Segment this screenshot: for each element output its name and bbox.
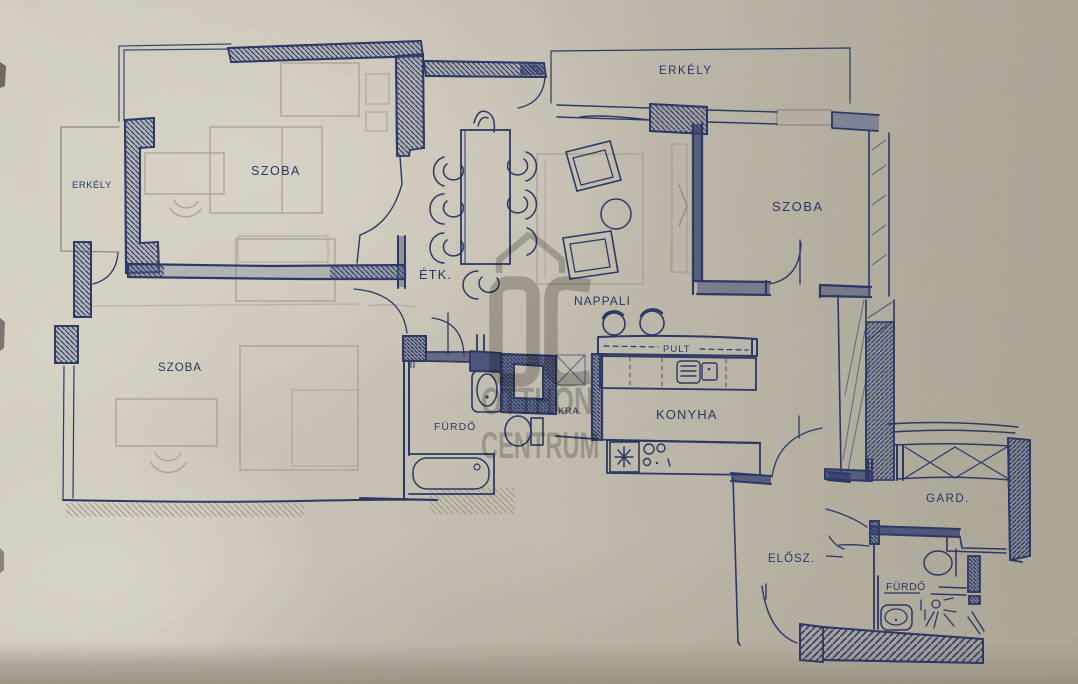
svg-text:GARD.: GARD. (926, 493, 970, 505)
svg-text:ELŐSZ.: ELŐSZ. (768, 551, 815, 565)
svg-text:ERKÉLY: ERKÉLY (72, 180, 112, 191)
svg-text:ÉTK.: ÉTK. (419, 267, 452, 282)
svg-text:KONYHA: KONYHA (656, 407, 718, 422)
svg-text:PULT: PULT (663, 344, 691, 355)
svg-text:56: 56 (733, 285, 743, 294)
svg-text:SZOBA: SZOBA (158, 362, 202, 374)
svg-text:SZOBA: SZOBA (251, 164, 301, 178)
svg-text:ERKÉLY: ERKÉLY (659, 64, 713, 77)
svg-text:SZOBA: SZOBA (772, 199, 824, 214)
svg-text:CENTRUM: CENTRUM (481, 425, 599, 467)
svg-text:FÜRDŐ: FÜRDŐ (886, 579, 926, 593)
svg-text:FÜRDŐ: FÜRDŐ (434, 419, 476, 433)
svg-text:NAPPALI: NAPPALI (574, 294, 631, 308)
svg-text:OTTHON: OTTHON (481, 379, 593, 422)
